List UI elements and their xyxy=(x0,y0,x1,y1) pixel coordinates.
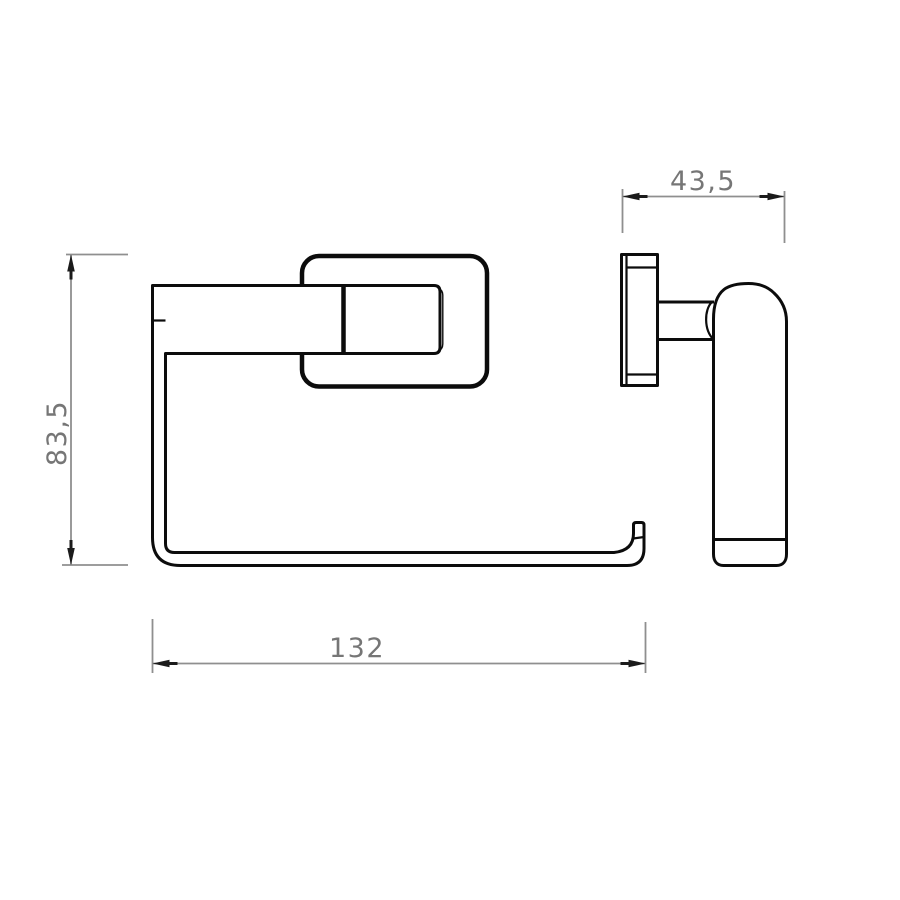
width-arrow-left xyxy=(153,660,178,668)
depth-dimension-label: 43,5 xyxy=(670,166,736,197)
width-arrow-right xyxy=(621,660,646,668)
holder-arm-side xyxy=(714,284,787,566)
front-view xyxy=(153,256,645,566)
roll-holder-strip xyxy=(153,286,645,566)
height-arrow-bottom xyxy=(67,540,75,565)
dimension-width: 132 xyxy=(153,619,646,673)
technical-drawing-canvas: 43,5 83,5 132 xyxy=(0,0,900,900)
depth-arrow-left xyxy=(623,193,648,201)
hook-tip-line xyxy=(634,537,645,539)
height-arrow-top xyxy=(67,255,75,280)
dimension-height: 83,5 xyxy=(42,255,128,566)
depth-arrow-right xyxy=(760,193,785,201)
dimension-depth: 43,5 xyxy=(623,166,785,243)
side-view xyxy=(622,255,787,566)
width-dimension-label: 132 xyxy=(329,633,385,664)
height-dimension-label: 83,5 xyxy=(42,400,73,466)
